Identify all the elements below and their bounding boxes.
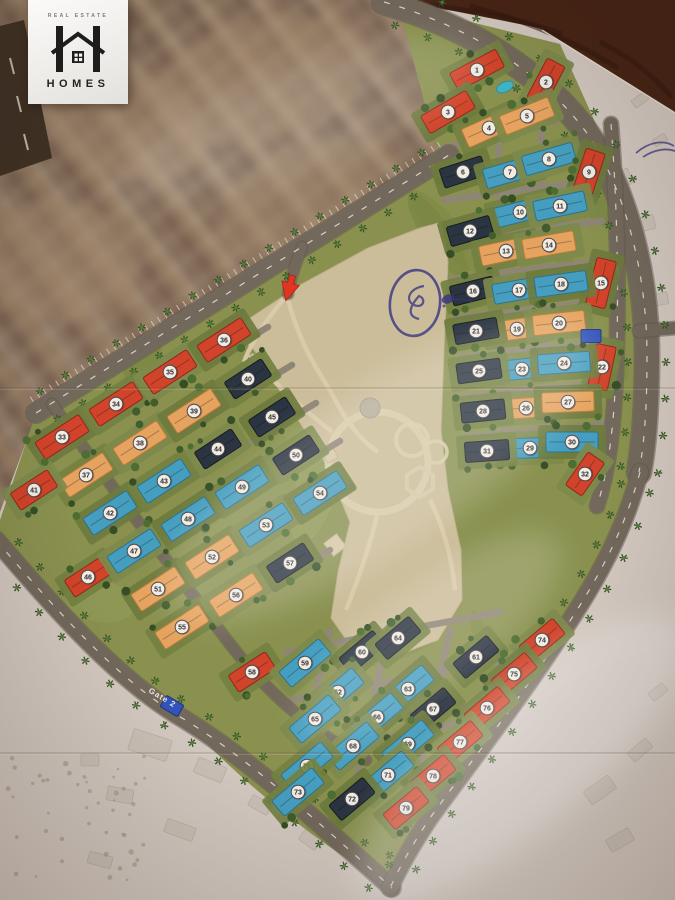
master-plan-map: 1234567891011121314151617181920212223242… xyxy=(0,0,675,900)
building-number: 34 xyxy=(112,402,120,409)
building-number: 38 xyxy=(136,441,144,448)
brand-logo: REAL ESTATE HOMES xyxy=(28,0,128,104)
building-number: 12 xyxy=(466,229,474,236)
building-number: 39 xyxy=(190,409,198,416)
building-number: 42 xyxy=(106,511,114,518)
building-number: 40 xyxy=(244,377,252,384)
building-number: 10 xyxy=(516,210,524,217)
building-number: 71 xyxy=(384,773,392,780)
building-number: 59 xyxy=(301,661,309,668)
building-number: 30 xyxy=(568,440,576,447)
building-number: 73 xyxy=(294,790,302,797)
h-house-monogram-icon xyxy=(46,21,110,77)
building-number: 13 xyxy=(502,249,510,256)
building-number: 2 xyxy=(544,80,548,87)
building-number: 5 xyxy=(525,114,529,121)
building-number: 45 xyxy=(268,415,276,422)
building-number: 37 xyxy=(82,473,90,480)
building-number: 44 xyxy=(214,447,222,454)
building-number: 3 xyxy=(446,110,450,117)
building-number: 72 xyxy=(348,797,356,804)
logo-brand-name: HOMES xyxy=(47,78,110,90)
road-east-spur xyxy=(639,328,675,331)
site-plan-photo: 1234567891011121314151617181920212223242… xyxy=(0,0,675,900)
tree-icon xyxy=(582,422,590,430)
building-number: 33 xyxy=(58,435,66,442)
building-number: 6 xyxy=(461,170,465,177)
building-number: 8 xyxy=(547,157,551,164)
building-number: 47 xyxy=(130,549,138,556)
building-number: 67 xyxy=(429,707,437,714)
building-number: 74 xyxy=(538,638,546,645)
building-number: 43 xyxy=(160,479,168,486)
building-number: 11 xyxy=(556,204,564,211)
building-number: 18 xyxy=(557,282,565,289)
building-number: 48 xyxy=(184,517,192,524)
logo-tagline: REAL ESTATE xyxy=(48,13,108,19)
building-number: 9 xyxy=(587,170,591,177)
building-number: 36 xyxy=(220,338,228,345)
building-number: 51 xyxy=(154,587,162,594)
building-number: 4 xyxy=(487,126,491,133)
building-number: 7 xyxy=(508,170,512,177)
building-number: 46 xyxy=(84,575,92,582)
building-number: 22 xyxy=(598,365,606,372)
building-number: 41 xyxy=(30,488,38,495)
building-number: 55 xyxy=(178,625,186,632)
building-number: 15 xyxy=(597,281,605,288)
building-number: 16 xyxy=(469,289,477,296)
building-number: 32 xyxy=(581,472,589,479)
building-number: 35 xyxy=(166,370,174,377)
building-number: 14 xyxy=(545,243,553,250)
building-number: 17 xyxy=(515,288,523,295)
building-number: 58 xyxy=(248,670,256,677)
